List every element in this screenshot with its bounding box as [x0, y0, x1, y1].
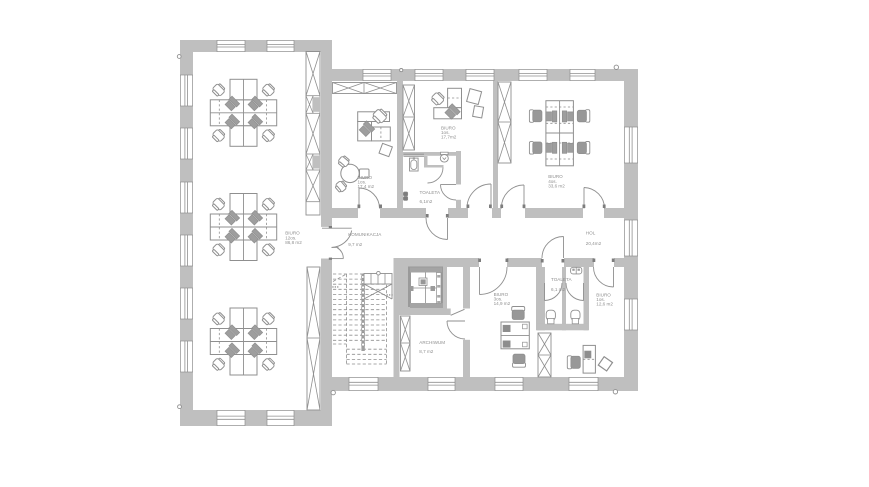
svg-text:TOALETA: TOALETA	[420, 190, 441, 195]
svg-text:20,4m2: 20,4m2	[586, 241, 602, 246]
svg-text:33,6 m2: 33,6 m2	[548, 184, 565, 189]
svg-text:17,4 m2: 17,4 m2	[358, 184, 375, 189]
svg-text:HOL: HOL	[586, 231, 596, 236]
svg-text:TOALETA: TOALETA	[551, 277, 572, 282]
svg-text:14,9 m2: 14,9 m2	[494, 301, 511, 306]
svg-text:86,8 m2: 86,8 m2	[285, 240, 302, 245]
svg-text:17,7m2: 17,7m2	[441, 135, 457, 140]
svg-text:12,6 m2: 12,6 m2	[596, 302, 613, 307]
svg-text:8,7 m2: 8,7 m2	[419, 349, 433, 354]
svg-text:ARCHIWUM: ARCHIWUM	[419, 340, 445, 345]
svg-text:KOMUNIKACJA: KOMUNIKACJA	[348, 232, 382, 237]
svg-text:6,1m2: 6,1m2	[420, 199, 433, 204]
svg-text:6,1 m2: 6,1 m2	[551, 287, 565, 292]
svg-text:9,7 m2: 9,7 m2	[348, 242, 362, 247]
